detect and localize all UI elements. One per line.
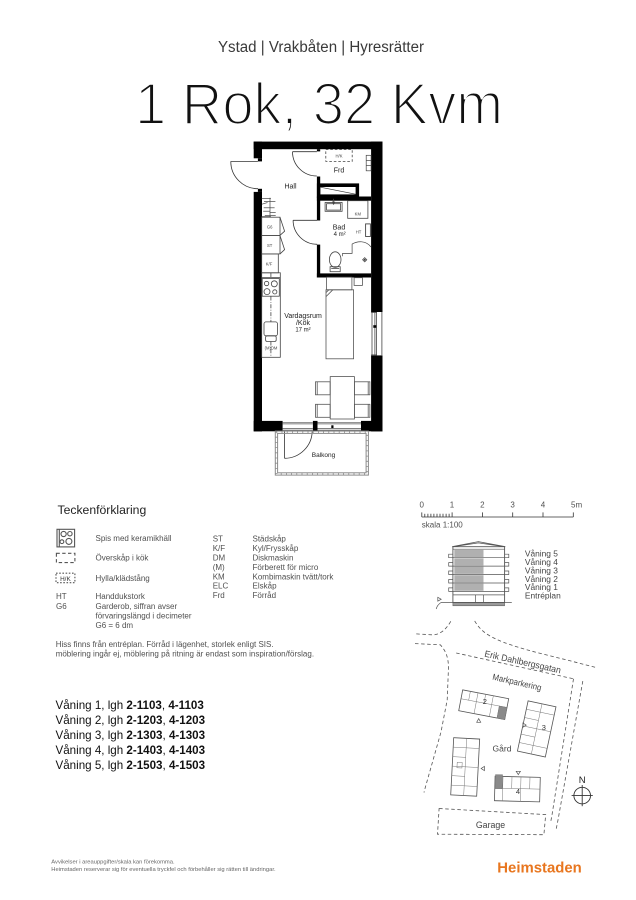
svg-text:skala 1:100: skala 1:100 [422,521,463,530]
svg-text:G6: G6 [56,602,67,611]
svg-text:2: 2 [483,697,487,706]
svg-text:Kyl/Frysskåp: Kyl/Frysskåp [253,544,299,553]
svg-text:G6: G6 [267,225,273,230]
svg-text:Heimstaden reserverar sig för: Heimstaden reserverar sig för eventuella… [51,866,276,873]
svg-text:4: 4 [516,787,520,796]
svg-text:1: 1 [450,501,455,510]
svg-text:0: 0 [420,501,425,510]
svg-text:Bad: Bad [333,224,346,231]
svg-text:Hiss finns från entréplan. Fö: Hiss finns från entréplan. Förråd i läge… [56,640,274,649]
svg-text:N: N [579,775,586,786]
svg-text:1 Rok, 32 Kvm: 1 Rok, 32 Kvm [135,72,503,137]
svg-text:Spis med keramikhäll: Spis med keramikhäll [96,534,172,543]
svg-text:Elskåp: Elskåp [253,582,278,591]
svg-text:KM: KM [213,572,225,581]
svg-text:Heimstaden: Heimstaden [497,860,582,877]
svg-text:Hylla/klädstång: Hylla/klädstång [96,574,150,583]
svg-text:Garage: Garage [476,820,505,830]
svg-text:17 m²: 17 m² [295,328,310,334]
svg-text:ST: ST [213,535,223,544]
svg-text:Avvikelser i areauppgifter/ska: Avvikelser i areauppgifter/skala kan för… [51,860,175,866]
svg-text:möblering ingår ej, möblering: möblering ingår ej, möblering på ritning… [56,649,314,658]
svg-text:G6 = 6 dm: G6 = 6 dm [96,621,134,630]
svg-text:2: 2 [480,501,485,510]
svg-text:Våning 3, lgh 2-1303, 4-1303: Våning 3, lgh 2-1303, 4-1303 [56,729,206,742]
svg-text:Frd: Frd [213,591,225,600]
svg-text:H/K: H/K [336,153,343,158]
svg-text:(M)DM: (M)DM [265,346,278,351]
svg-text:Förberett för micro: Förberett för micro [253,563,319,572]
svg-text:Överskåp i kök: Överskåp i kök [96,553,150,562]
svg-text:ST: ST [267,243,273,248]
svg-text:Garderob, siffran avser: Garderob, siffran avser [96,602,178,611]
svg-text:Ystad | Vrakbåten | Hyresrätte: Ystad | Vrakbåten | Hyresrätter [218,39,424,56]
svg-text:K/F: K/F [266,261,273,266]
svg-text:ELC: ELC [213,582,229,591]
svg-text:Våning 4, lgh 2-1403, 4-1403: Våning 4, lgh 2-1403, 4-1403 [56,744,206,757]
svg-text:Handdukstork: Handdukstork [96,592,146,601]
svg-text:förvaringslängd i decimeter: förvaringslängd i decimeter [96,612,192,621]
svg-text:3: 3 [542,723,546,732]
svg-text:HT: HT [56,592,67,601]
svg-text:Förråd: Förråd [253,591,277,600]
svg-text:4: 4 [541,501,546,510]
svg-text:4 m²: 4 m² [334,232,346,238]
svg-text:Entréplan: Entréplan [525,591,561,601]
svg-text:Diskmaskin: Diskmaskin [253,553,294,562]
svg-text:3: 3 [510,501,515,510]
svg-text:Våning 5, lgh 2-1503, 4-1503: Våning 5, lgh 2-1503, 4-1503 [56,759,206,772]
svg-text:H/K: H/K [60,576,71,583]
svg-text:Gård: Gård [493,744,512,754]
svg-text:Våning 2, lgh 2-1203, 4-1203: Våning 2, lgh 2-1203, 4-1203 [56,714,206,727]
svg-text:DM: DM [213,553,226,562]
svg-text:(M): (M) [213,563,225,572]
svg-text:K/F: K/F [213,544,226,553]
svg-text:HT: HT [356,230,362,235]
svg-text:Balkong: Balkong [312,452,336,459]
svg-text:5m: 5m [571,501,582,510]
svg-text:Frd: Frd [334,168,345,175]
svg-text:/Kök: /Kök [296,320,311,327]
svg-text:Kombimaskin tvätt/tork: Kombimaskin tvätt/tork [253,572,335,581]
svg-text:Teckenförklaring: Teckenförklaring [58,503,147,517]
svg-text:Hall: Hall [284,184,297,191]
svg-text:Våning 1, lgh 2-1103, 4-1103: Våning 1, lgh 2-1103, 4-1103 [56,699,205,712]
svg-text:Städskåp: Städskåp [253,535,287,544]
svg-text:KM: KM [355,212,362,217]
